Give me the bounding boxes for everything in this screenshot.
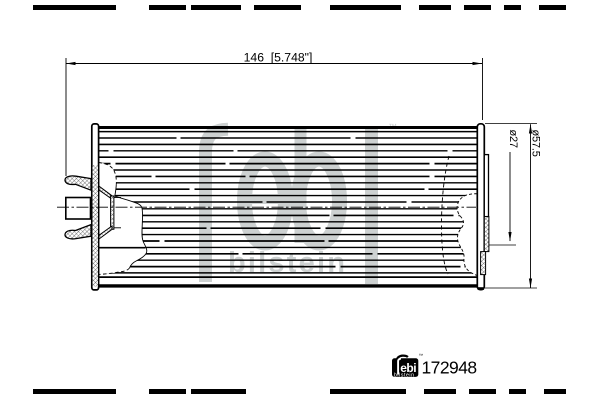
svg-text:bilstein: bilstein	[228, 247, 347, 279]
svg-text:bilstein: bilstein	[394, 372, 415, 378]
svg-text:172948: 172948	[422, 358, 477, 378]
svg-text:ø57.5: ø57.5	[529, 130, 541, 157]
svg-text:146 [5.748"]: 146 [5.748"]	[244, 51, 313, 65]
svg-text:ø27: ø27	[507, 130, 519, 148]
